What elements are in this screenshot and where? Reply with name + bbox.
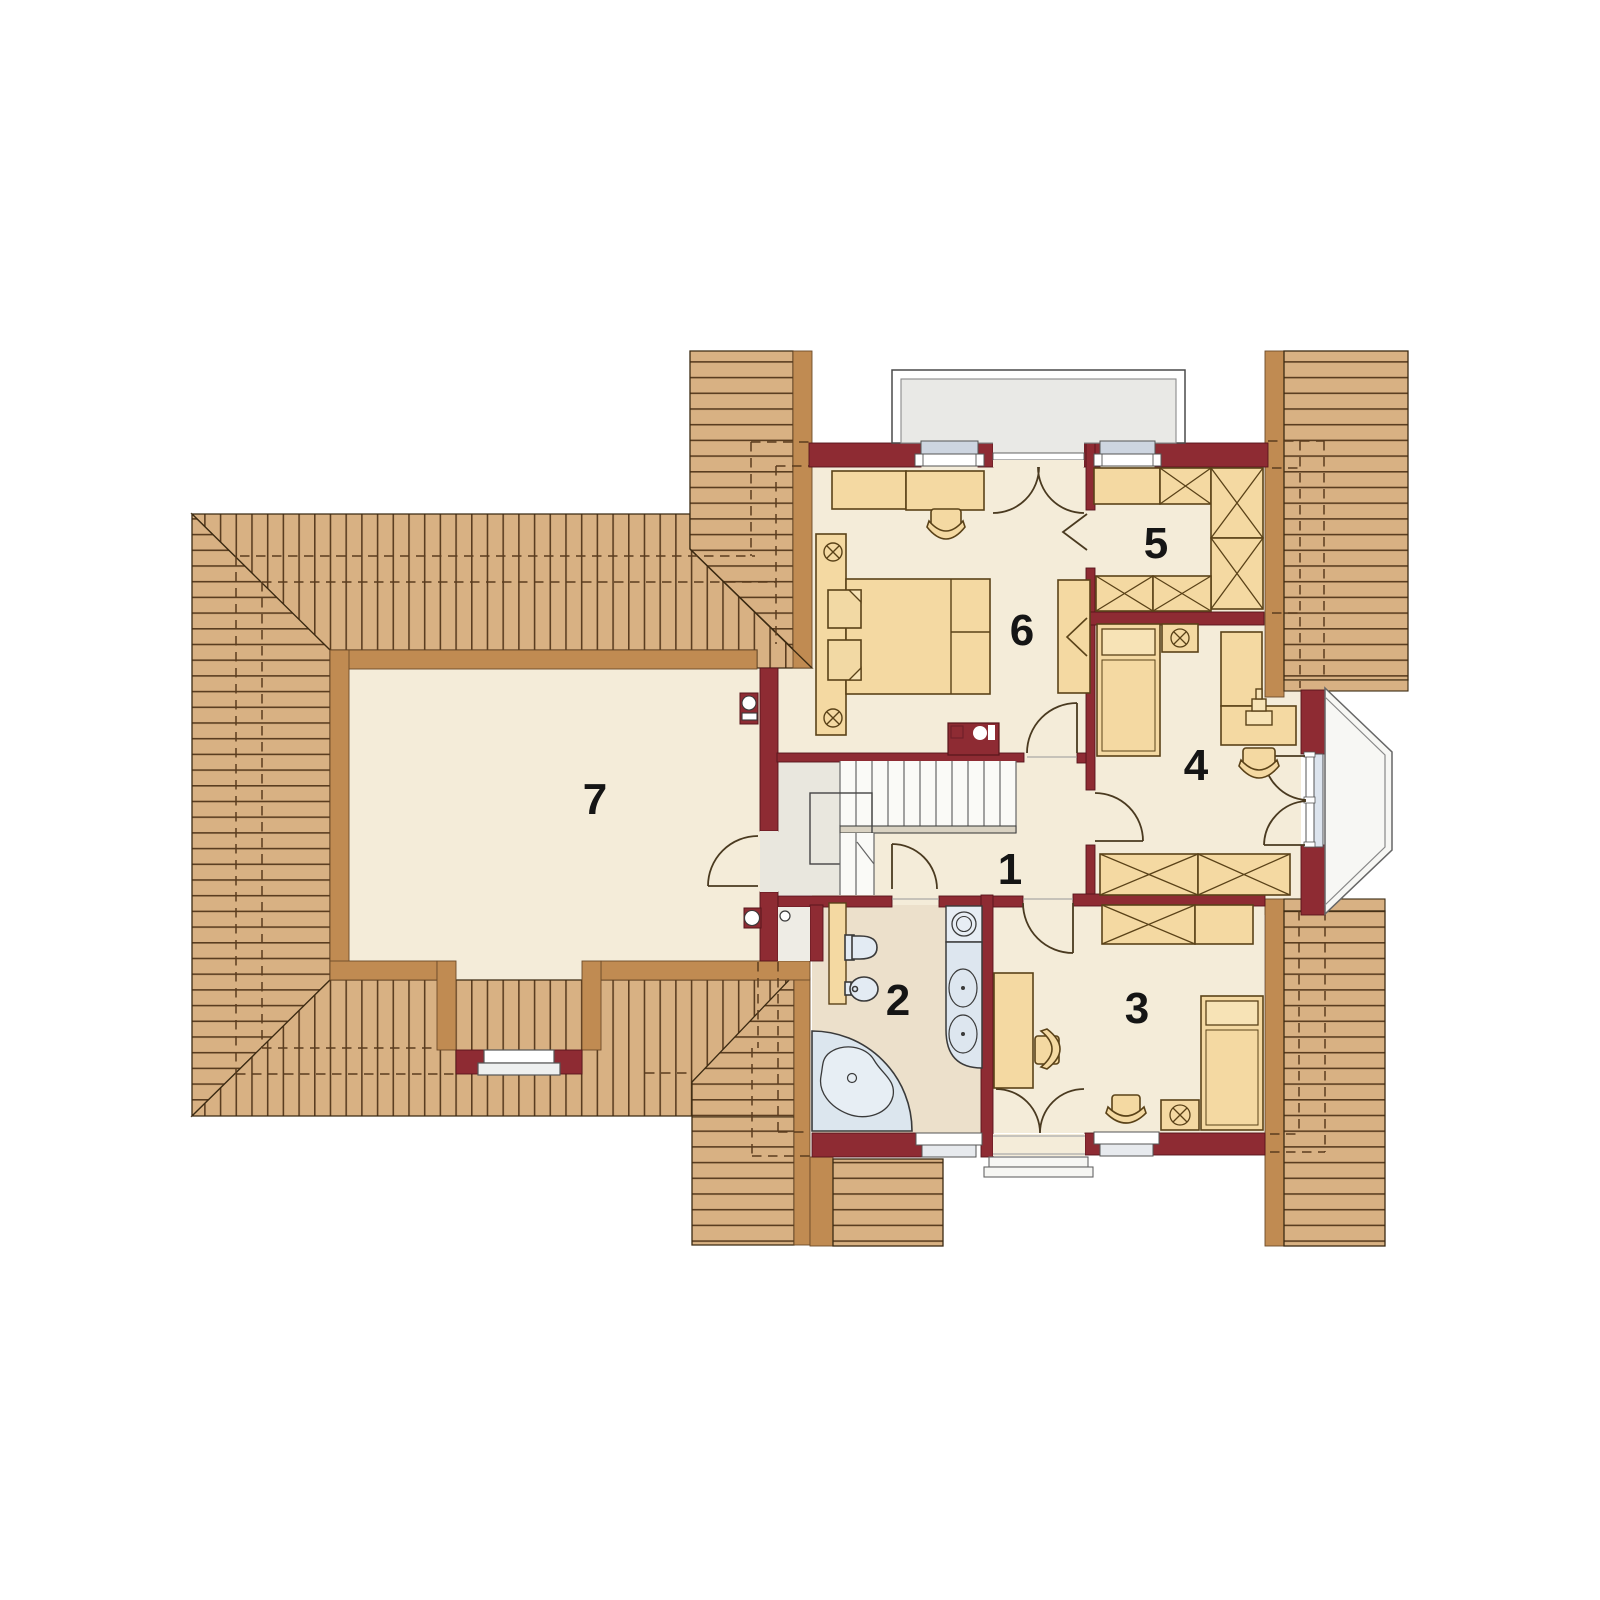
svg-text:6: 6	[1010, 606, 1034, 655]
svg-text:1: 1	[998, 845, 1022, 894]
svg-text:3: 3	[1125, 984, 1149, 1033]
svg-text:5: 5	[1144, 519, 1168, 568]
svg-text:2: 2	[886, 976, 910, 1025]
svg-text:4: 4	[1184, 741, 1209, 790]
svg-text:7: 7	[583, 775, 607, 824]
